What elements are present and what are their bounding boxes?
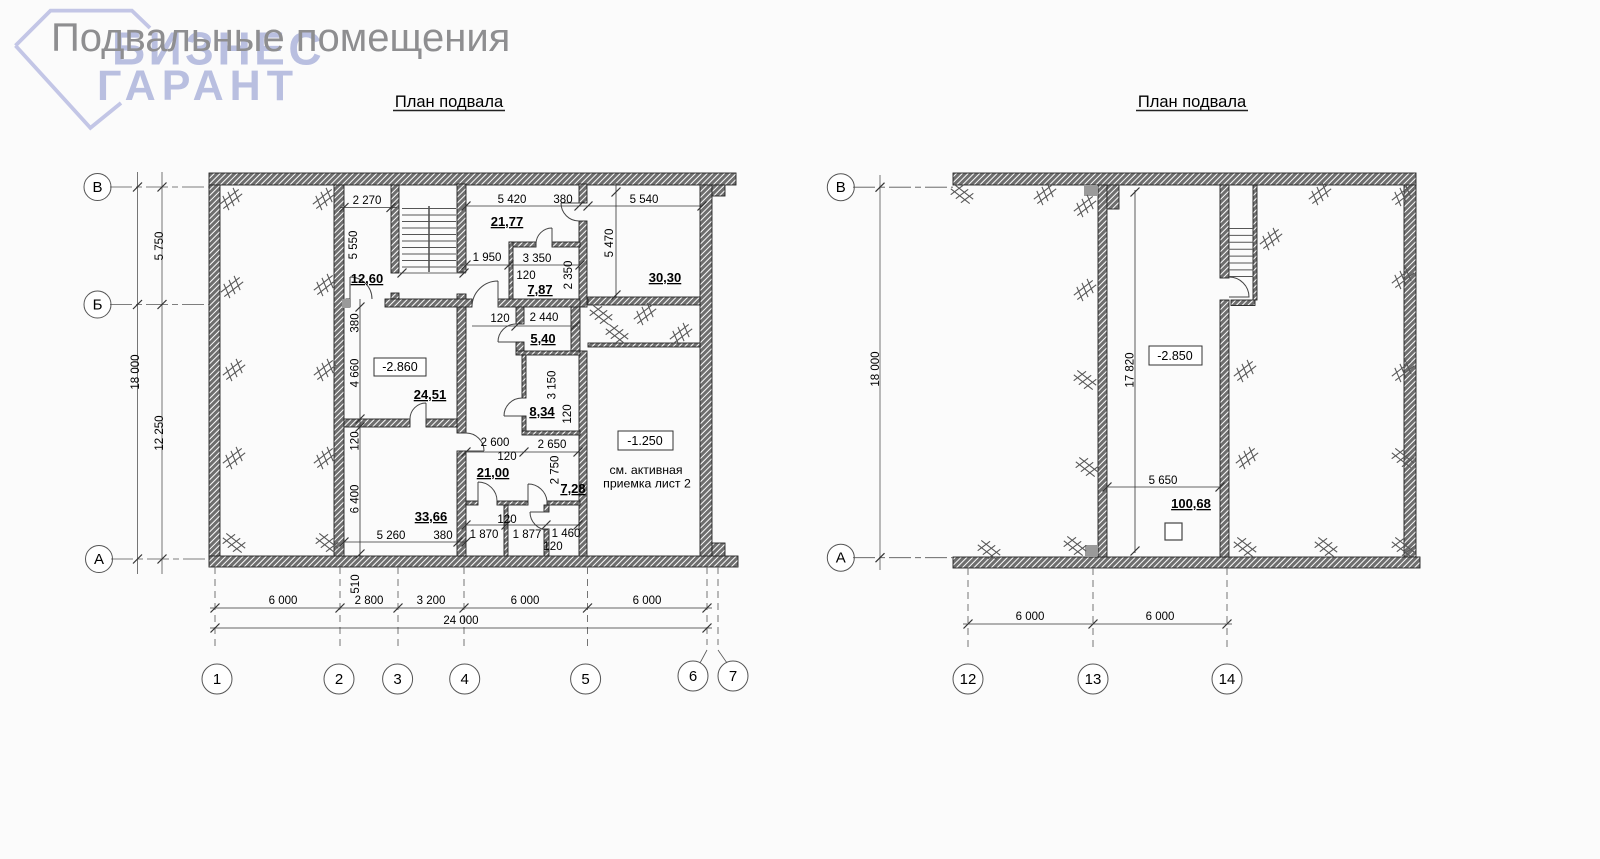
svg-text:4 660: 4 660 [350, 359, 362, 388]
svg-text:3 200: 3 200 [417, 595, 446, 607]
svg-text:5 540: 5 540 [630, 194, 659, 206]
svg-text:21,00: 21,00 [477, 465, 510, 480]
svg-text:6 000: 6 000 [633, 595, 662, 607]
svg-text:2 600: 2 600 [481, 437, 510, 449]
svg-text:Б: Б [93, 297, 103, 314]
svg-text:13: 13 [1085, 671, 1102, 688]
svg-text:510: 510 [350, 574, 362, 593]
svg-text:5 550: 5 550 [348, 231, 360, 260]
svg-text:24 000: 24 000 [443, 615, 478, 627]
svg-text:5,40: 5,40 [530, 331, 555, 346]
svg-text:2 350: 2 350 [563, 261, 575, 290]
svg-text:2 270: 2 270 [353, 195, 382, 207]
svg-text:1: 1 [213, 671, 221, 688]
svg-text:5: 5 [581, 671, 589, 688]
svg-text:3 150: 3 150 [547, 371, 559, 400]
svg-text:380: 380 [350, 313, 362, 332]
svg-text:5 750: 5 750 [154, 232, 166, 261]
svg-text:380: 380 [433, 530, 452, 542]
svg-text:6 000: 6 000 [1016, 611, 1045, 623]
svg-text:6: 6 [689, 668, 697, 685]
svg-text:6 000: 6 000 [511, 595, 540, 607]
svg-text:4: 4 [461, 671, 469, 688]
svg-text:24,51: 24,51 [414, 387, 447, 402]
svg-text:100,68: 100,68 [1171, 496, 1211, 511]
svg-text:А: А [94, 551, 104, 568]
svg-text:2 800: 2 800 [355, 595, 384, 607]
svg-text:8,34: 8,34 [529, 404, 555, 419]
svg-text:120: 120 [543, 541, 562, 553]
svg-text:120: 120 [516, 270, 535, 282]
svg-text:18 000: 18 000 [870, 351, 882, 386]
svg-text:В: В [92, 179, 102, 196]
svg-text:30,30: 30,30 [649, 270, 682, 285]
svg-text:14: 14 [1219, 671, 1236, 688]
svg-text:33,66: 33,66 [415, 509, 448, 524]
svg-text:7: 7 [729, 668, 737, 685]
svg-text:120: 120 [497, 451, 516, 463]
svg-text:-2.860: -2.860 [382, 360, 417, 374]
svg-text:380: 380 [553, 194, 572, 206]
svg-text:120: 120 [562, 404, 574, 423]
svg-text:ГАРАНТ: ГАРАНТ [97, 62, 299, 110]
svg-text:2: 2 [335, 671, 343, 688]
svg-text:5 470: 5 470 [604, 229, 616, 258]
svg-text:-2.850: -2.850 [1157, 349, 1192, 363]
svg-text:5 650: 5 650 [1149, 475, 1178, 487]
svg-text:А: А [836, 550, 846, 567]
svg-text:План подвала: План подвала [1138, 93, 1247, 111]
svg-text:приемка лист 2: приемка лист 2 [603, 477, 691, 491]
svg-text:7,28: 7,28 [560, 481, 585, 496]
svg-text:12,60: 12,60 [351, 271, 384, 286]
svg-text:1 877: 1 877 [513, 529, 542, 541]
svg-text:План подвала: План подвала [395, 93, 504, 111]
svg-text:6 400: 6 400 [350, 485, 362, 514]
svg-text:1 950: 1 950 [473, 252, 502, 264]
svg-text:5 260: 5 260 [377, 530, 406, 542]
svg-text:12: 12 [960, 671, 977, 688]
svg-text:12 250: 12 250 [154, 415, 166, 450]
svg-text:18 000: 18 000 [130, 354, 142, 389]
svg-text:3: 3 [393, 671, 401, 688]
svg-text:см. активная: см. активная [609, 463, 682, 477]
svg-text:120: 120 [490, 313, 509, 325]
svg-text:17 820: 17 820 [1125, 352, 1137, 387]
svg-text:120: 120 [350, 431, 362, 450]
svg-text:-1.250: -1.250 [627, 434, 662, 448]
svg-text:7,87: 7,87 [527, 282, 552, 297]
svg-text:120: 120 [497, 514, 516, 526]
svg-text:2 650: 2 650 [538, 439, 567, 451]
svg-text:6 000: 6 000 [1146, 611, 1175, 623]
svg-text:6 000: 6 000 [269, 595, 298, 607]
svg-text:21,77: 21,77 [491, 214, 524, 229]
svg-text:5 420: 5 420 [498, 194, 527, 206]
svg-text:1 460: 1 460 [552, 528, 581, 540]
svg-text:3 350: 3 350 [523, 253, 552, 265]
svg-text:1 870: 1 870 [470, 529, 499, 541]
svg-text:Подвальные помещения: Подвальные помещения [51, 16, 510, 60]
svg-text:2 440: 2 440 [530, 312, 559, 324]
svg-text:В: В [836, 179, 846, 196]
